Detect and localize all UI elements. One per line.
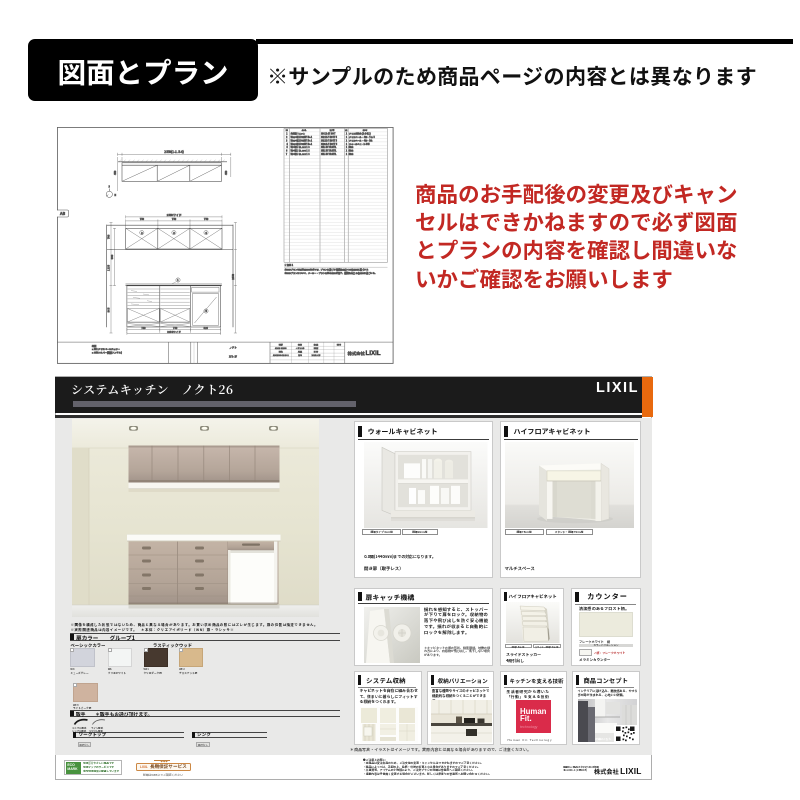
svg-text:■ 本体シルバー樹脂(ハンドル): ■ 本体シルバー樹脂(ハンドル) — [92, 351, 122, 355]
svg-text:詳細はこちら: 詳細はこちら — [595, 737, 611, 741]
svg-text:900: 900 — [110, 254, 114, 260]
svg-text:食器棚ユニット: 食器棚ユニット — [291, 132, 306, 136]
svg-text:品 名: 品 名 — [301, 128, 306, 132]
svg-text:2550(1-1.5-4): 2550(1-1.5-4) — [164, 150, 184, 154]
svg-text:5: 5 — [204, 309, 207, 313]
svg-text:W吊戸棚1 P用横750×1: W吊戸棚1 P用横750×1 — [291, 135, 313, 139]
svg-text:数 量: 数 量 — [314, 343, 318, 346]
svg-text:1 注記 1: 1 注記 1 — [284, 263, 294, 267]
svg-text:W吊戸棚1 P用横750×1: W吊戸棚1 P用横750×1 — [291, 138, 313, 142]
svg-text:本図のプランについて、メーカー・プラン仕様の確認が完了、御発: 本図のプランについて、メーカー・プラン仕様の確認が完了、御発注組立 の各確認に基… — [285, 271, 377, 275]
svg-text:A362036-S2-20-2: A362036-S2-20-2 — [273, 354, 289, 357]
svg-text:42620 S2990: 42620 S2990 — [274, 347, 288, 350]
svg-text:3: 3 — [173, 231, 175, 235]
svg-text:ウォールユニ・2-545: ウォールユニ・2-545 — [349, 142, 370, 146]
svg-text:日 付: 日 付 — [314, 351, 318, 354]
svg-text:450: 450 — [224, 170, 228, 175]
svg-text:W吊戸棚1 P用横750×1: W吊戸棚1 P用横750×1 — [291, 142, 313, 146]
svg-text:7: 7 — [286, 153, 288, 156]
svg-text:A3ZZ0612-S1-B: A3ZZ0612-S1-B — [374, 364, 392, 365]
svg-text:2024.3.25: 2024.3.25 — [311, 354, 321, 357]
svg-text:865: 865 — [107, 307, 111, 312]
svg-text:750: 750 — [172, 217, 177, 221]
svg-text:W戸棚1 Sム カウ1 S: W戸棚1 Sム カウ1 S — [291, 145, 310, 149]
svg-text:1235: 1235 — [107, 265, 111, 272]
svg-text:SWL5075AST7L: SWL5075AST7L — [321, 153, 337, 156]
svg-text:クリエ色指定 (1-1411): クリエ色指定 (1-1411) — [349, 132, 371, 136]
svg-text:クリエペール・4種・5本: クリエペール・4種・5本 — [349, 138, 373, 142]
svg-text:図名: 図名 — [278, 350, 283, 354]
svg-text:525: 525 — [202, 326, 208, 330]
svg-text:750: 750 — [141, 326, 146, 330]
svg-text:担当: 担当 — [297, 343, 302, 346]
svg-text:1F1-2F: 1F1-2F — [228, 355, 238, 359]
svg-text:ノクト1-B: ノクト1-B — [296, 347, 305, 350]
svg-text:図 面: 図 面 — [313, 347, 318, 350]
svg-text:記 号: 記 号 — [337, 343, 341, 346]
svg-text:株式会社 LIXIL: 株式会社 LIXIL — [347, 350, 381, 357]
svg-text:2: 2 — [141, 231, 143, 235]
svg-text:1/50: 1/50 — [298, 354, 303, 357]
svg-text:本図のプランは仕様確認の作成です。プランに基づき 御発注組立: 本図のプランは仕様確認の作成です。プランに基づき 御発注組立ての各確認に基づいた — [285, 268, 369, 272]
svg-text:W戸棚1 Sム カウ1 S: W戸棚1 Sム カウ1 S — [291, 152, 310, 156]
svg-text:クリエペール・4種・うち5: クリエペール・4種・うち5 — [349, 135, 375, 139]
svg-text:3: 3 — [108, 185, 110, 189]
svg-text:指定: 指定 — [348, 153, 354, 156]
svg-text:尺度: 尺度 — [297, 351, 302, 354]
svg-text:700: 700 — [107, 234, 111, 239]
svg-text:N: N — [115, 193, 117, 197]
svg-text:型番: 型番 — [278, 343, 283, 346]
svg-text:750: 750 — [204, 217, 209, 221]
svg-text:AB: AB — [59, 211, 66, 217]
svg-text:W戸棚1 Sム カウ1 S: W戸棚1 Sム カウ1 S — [291, 149, 310, 153]
svg-text:ノクト: ノクト — [229, 346, 237, 350]
svg-text:750: 750 — [140, 217, 145, 221]
svg-text:4: 4 — [205, 231, 207, 235]
svg-text:2254 ワイド: 2254 ワイド — [167, 330, 181, 334]
svg-text:1: 1 — [176, 278, 179, 282]
svg-text:450: 450 — [113, 170, 117, 175]
svg-text:1: 1 — [346, 153, 348, 156]
svg-text:A3ZZ0612-S1: A3ZZ0612-S1 — [318, 364, 334, 365]
